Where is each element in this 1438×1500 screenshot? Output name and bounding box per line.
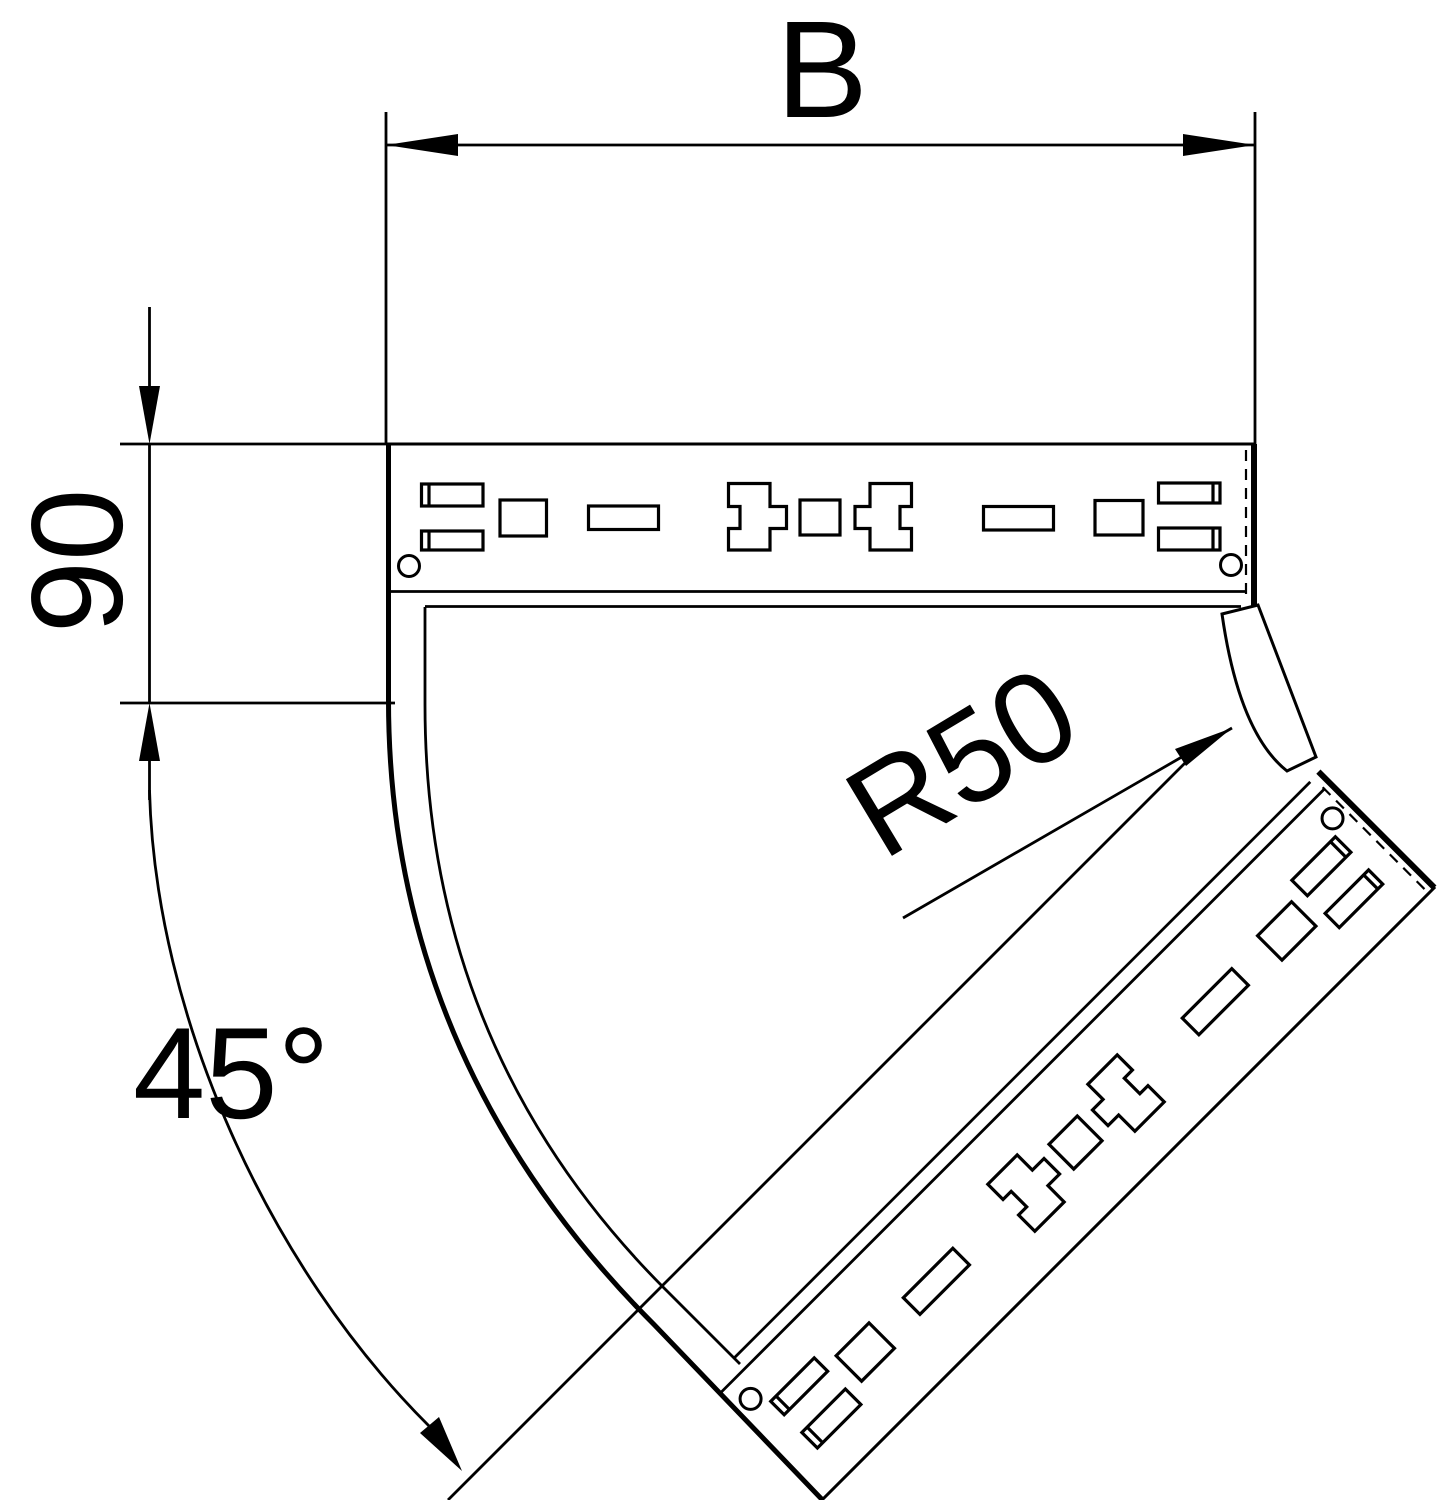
dim-90-label: 90 — [4, 489, 150, 634]
perforation-slot — [984, 507, 1054, 531]
perforation-square — [1095, 501, 1143, 536]
arrowhead-down — [139, 386, 160, 444]
perforation-square — [800, 500, 840, 535]
dim-45-label: 45° — [133, 1000, 330, 1146]
outer-rail-flange-fold — [425, 607, 740, 1364]
perforation-slot — [589, 506, 659, 530]
tray-run-template — [386, 444, 1255, 608]
fixing-hole-right — [1221, 555, 1242, 576]
perforation-slot — [1159, 528, 1221, 550]
arrowhead-leader — [1175, 728, 1232, 766]
technical-drawing-45deg-bend: B 90 45° R50 — [0, 0, 1438, 1500]
dimension-90 — [120, 307, 395, 800]
fixing-hole-left — [399, 556, 420, 577]
arrowhead-left — [386, 134, 458, 156]
perforation-t-slot-right — [729, 484, 787, 551]
dimension-b — [386, 112, 1255, 444]
arrowhead-up — [139, 703, 160, 761]
arrowhead-right — [1183, 134, 1255, 156]
perforation-t-slot-left — [855, 484, 912, 551]
perforation-slot — [1159, 483, 1221, 503]
dim-b-label: B — [776, 0, 868, 147]
drawing-canvas: B 90 45° R50 — [0, 0, 1438, 1500]
perforation-slot — [422, 484, 484, 506]
perforation-row — [422, 483, 1221, 550]
dim-r50-label: R50 — [822, 637, 1102, 885]
perforation-slot — [422, 531, 484, 550]
perforation-square — [500, 500, 547, 536]
inner-corner-cap — [1222, 605, 1316, 771]
angle-leg-45 — [448, 758, 1190, 1500]
